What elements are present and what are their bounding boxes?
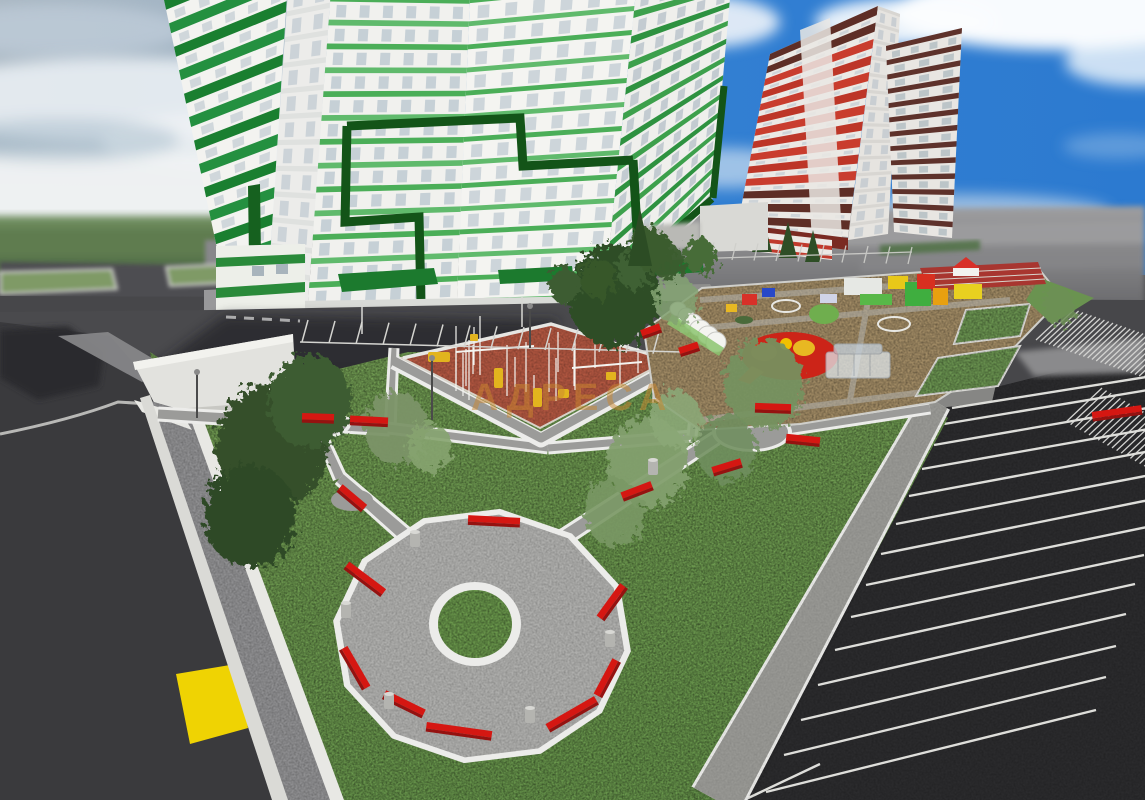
svg-text:АДРЕСА: АДРЕСА <box>471 377 674 419</box>
